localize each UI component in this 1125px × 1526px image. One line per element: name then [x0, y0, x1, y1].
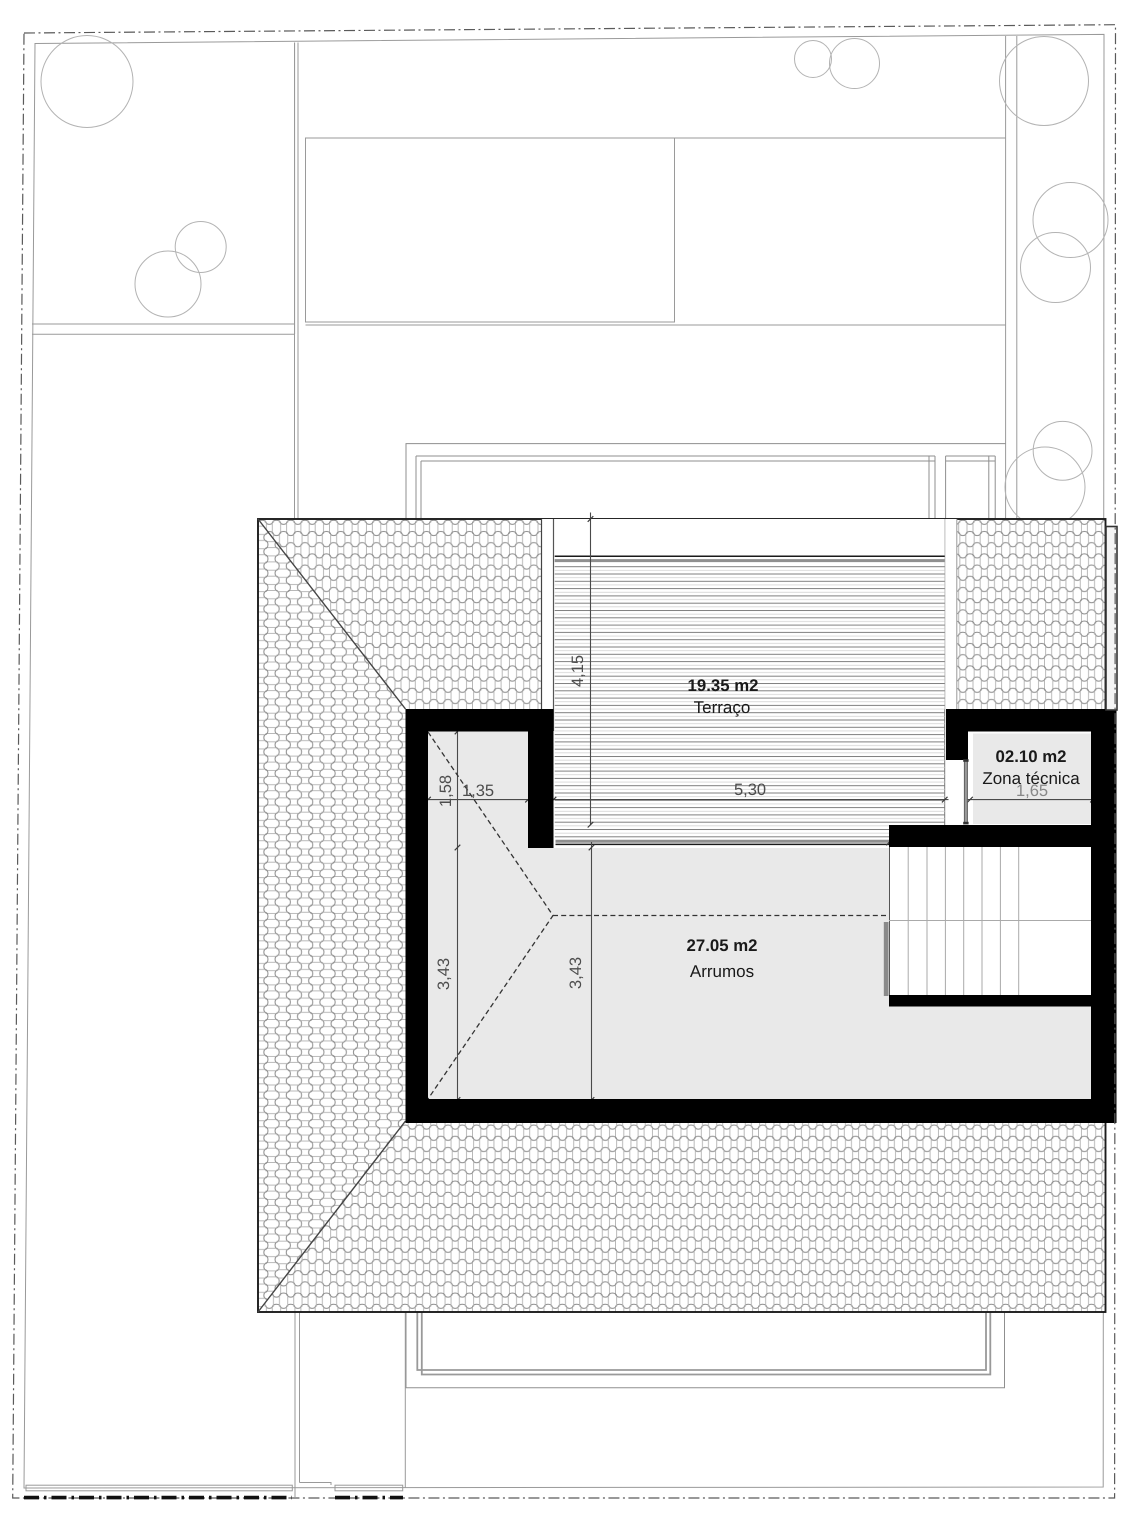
svg-text:Arrumos: Arrumos — [690, 962, 754, 981]
svg-text:19.35 m2: 19.35 m2 — [688, 676, 759, 695]
svg-text:27.05 m2: 27.05 m2 — [687, 936, 758, 955]
svg-text:3,43: 3,43 — [435, 958, 453, 990]
svg-text:3,43: 3,43 — [567, 957, 585, 989]
svg-text:1,35: 1,35 — [462, 782, 494, 800]
svg-text:02.10 m2: 02.10 m2 — [996, 747, 1067, 766]
svg-text:1,58: 1,58 — [437, 775, 455, 807]
svg-text:Terraço: Terraço — [694, 698, 751, 717]
svg-text:5,30: 5,30 — [734, 781, 766, 799]
svg-text:4,15: 4,15 — [569, 655, 587, 687]
svg-text:1,65: 1,65 — [1016, 782, 1048, 800]
